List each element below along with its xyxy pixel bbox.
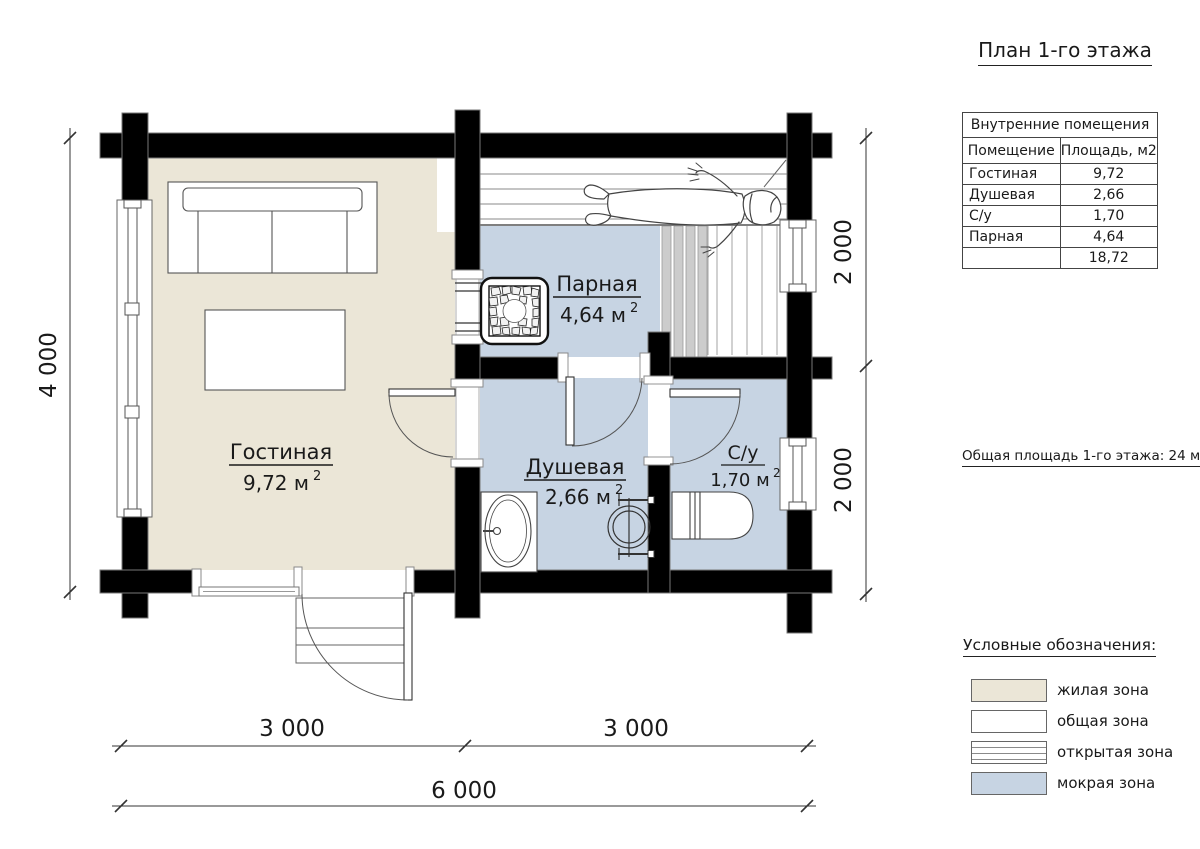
legend-label-open: открытая зона — [1057, 741, 1173, 764]
wc-name: С/у — [728, 442, 759, 464]
living-area-sup: 2 — [313, 469, 321, 484]
coffee-table — [205, 310, 345, 390]
wall-interior-vertical-top — [455, 110, 480, 277]
living-area: 9,72 м — [243, 471, 309, 495]
sink — [481, 492, 537, 572]
legend-label-common: общая зона — [1057, 710, 1149, 733]
chimney-gap — [437, 158, 455, 232]
legend-swatch-wet — [971, 772, 1047, 795]
rooms-table: Внутренние помещения Помещение Площадь, … — [962, 112, 1158, 269]
page-title: План 1-го этажа — [952, 38, 1178, 66]
toilet — [672, 492, 753, 539]
legend-swatch-open — [971, 741, 1047, 764]
dim-right-bottom-label: 2 000 — [831, 447, 857, 513]
wall-interior-horizontal-left — [480, 357, 567, 379]
shower-name: Душевая — [526, 455, 625, 479]
dim-left-label: 4 000 — [36, 332, 62, 398]
window-right-top — [780, 220, 816, 292]
table-row: Гостиная 9,72 — [963, 164, 1158, 185]
sofa — [168, 182, 377, 273]
dimension-left — [64, 128, 76, 600]
wall-right — [787, 113, 812, 633]
total-area-note: Общая площадь 1-го этажа: 24 м2 — [962, 448, 1200, 467]
sauna-stove — [455, 278, 548, 344]
porch-opening-sill — [199, 587, 299, 596]
legend-label-wet: мокрая зона — [1057, 772, 1155, 795]
floor-plan-drawing: Гостиная 9,72 м 2 Парная 4,64 м 2 Душева… — [0, 0, 940, 849]
window-left — [117, 200, 152, 517]
table-total-value: 18,72 — [1060, 248, 1158, 269]
dim-bottom-left-label: 3 000 — [259, 716, 325, 742]
legend-swatch-common — [971, 710, 1047, 733]
steam-area: 4,64 м — [560, 303, 626, 327]
floor-plan-page: Гостиная 9,72 м 2 Парная 4,64 м 2 Душева… — [0, 0, 1200, 849]
table-total-row: 18,72 — [963, 248, 1158, 269]
door-entrance — [302, 593, 412, 700]
dimension-right — [860, 128, 872, 602]
wall-wc-top — [648, 332, 670, 380]
rooms-table-col-area: Площадь, м2 — [1060, 138, 1158, 164]
dim-bottom-total-label: 6 000 — [431, 778, 497, 804]
wc-area-sup: 2 — [773, 466, 781, 480]
wall-wc-bottom — [648, 462, 670, 593]
dim-bottom-right-label: 3 000 — [603, 716, 669, 742]
rooms-table-col-room: Помещение — [963, 138, 1061, 164]
legend-title: Условные обозначения: — [963, 636, 1156, 657]
table-row: Душевая 2,66 — [963, 185, 1158, 206]
table-row: С/у 1,70 — [963, 206, 1158, 227]
legend-swatch-living — [971, 679, 1047, 702]
steam-area-sup: 2 — [630, 301, 638, 316]
table-row: Парная 4,64 — [963, 227, 1158, 248]
shower-area-sup: 2 — [615, 483, 623, 498]
living-name: Гостиная — [230, 440, 332, 464]
dim-right-top-label: 2 000 — [831, 219, 857, 285]
legend-label-living: жилая зона — [1057, 679, 1149, 702]
steam-name: Парная — [556, 272, 637, 296]
wall-interior-vertical-bottom — [455, 465, 480, 618]
wall-bottom-left — [100, 570, 200, 593]
wall-log-stub-right — [812, 357, 832, 379]
window-right-bottom — [780, 438, 816, 510]
entrance-steps — [296, 598, 408, 663]
rooms-table-caption: Внутренние помещения — [963, 113, 1158, 138]
wc-area: 1,70 м — [710, 470, 769, 491]
shower-area: 2,66 м — [545, 485, 611, 509]
